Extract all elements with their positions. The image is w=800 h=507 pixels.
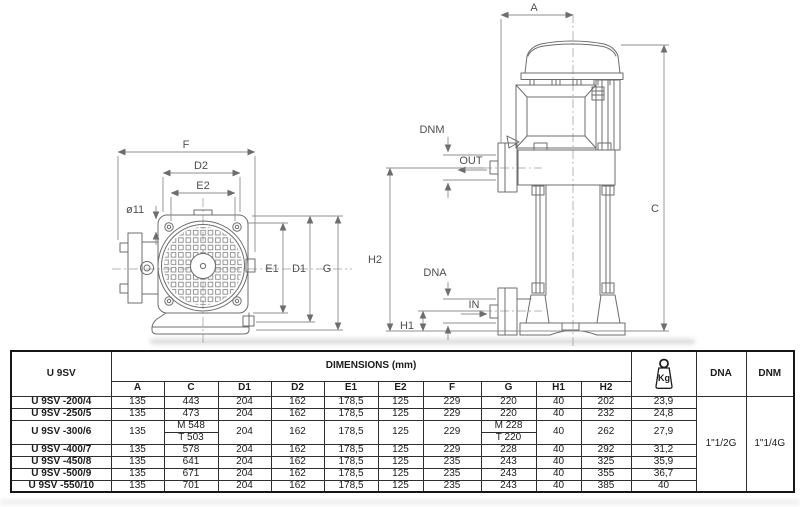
table-row: U 9SV -400/7 135 578 204 162 178,5 125 2… xyxy=(11,444,794,456)
dim-cell: 204 xyxy=(218,396,271,408)
dim-cell: 385 xyxy=(581,480,631,492)
dim-cell: 162 xyxy=(271,396,324,408)
dim-cell: 178,5 xyxy=(324,408,378,420)
dim-cell: 204 xyxy=(218,480,271,492)
port-label-out: OUT xyxy=(459,155,483,167)
dim-label-hole-diameter: ø11 xyxy=(126,204,144,216)
dim-cell: 229 xyxy=(423,420,481,444)
weight-cell: 36,7 xyxy=(631,468,696,480)
dim-cell: T 220 xyxy=(481,432,536,444)
dim-cell: 229 xyxy=(423,396,481,408)
side-view-drawing xyxy=(490,41,625,335)
dim-cell: 204 xyxy=(218,456,271,468)
dim-cell: 135 xyxy=(111,456,164,468)
dim-cell: 178,5 xyxy=(324,456,378,468)
dim-cell: 40 xyxy=(536,444,581,456)
dim-label-dnm: DNM xyxy=(419,124,444,136)
dna-value-cell: 1"1/2G xyxy=(696,396,746,492)
dim-cell: 178,5 xyxy=(324,396,378,408)
dim-cell: 232 xyxy=(581,408,631,420)
col-header-d1: D1 xyxy=(218,381,271,396)
dim-cell: 243 xyxy=(481,468,536,480)
dim-cell: 204 xyxy=(218,408,271,420)
dim-cell: 235 xyxy=(423,456,481,468)
dim-cell: 162 xyxy=(271,468,324,480)
dim-cell: 220 xyxy=(481,408,536,420)
col-header-c: C xyxy=(164,381,218,396)
dim-label-h2: H2 xyxy=(368,254,382,266)
model-cell: U 9SV -500/9 xyxy=(11,468,111,480)
weight-cell: 31,2 xyxy=(631,444,696,456)
dim-cell: 162 xyxy=(271,420,324,444)
dim-cell: 40 xyxy=(536,456,581,468)
weight-column-header: Kg xyxy=(631,351,696,396)
dim-cell: 40 xyxy=(536,396,581,408)
dim-label-g: G xyxy=(323,263,332,275)
dim-cell: 40 xyxy=(536,480,581,492)
dim-cell: 355 xyxy=(581,468,631,480)
dim-label-a: A xyxy=(530,2,538,14)
dim-cell: 243 xyxy=(481,456,536,468)
dim-label-d2: D2 xyxy=(194,160,208,172)
model-cell: U 9SV -400/7 xyxy=(11,444,111,456)
dim-cell: 220 xyxy=(481,396,536,408)
col-header-h2: H2 xyxy=(581,381,631,396)
dim-cell: 228 xyxy=(481,444,536,456)
dnm-header: DNM xyxy=(746,351,794,396)
dim-cell: 243 xyxy=(481,480,536,492)
dim-cell: 671 xyxy=(164,468,218,480)
dim-cell: 229 xyxy=(423,408,481,420)
scan-shadow xyxy=(150,339,695,344)
col-header-h1: H1 xyxy=(536,381,581,396)
col-header-a: A xyxy=(111,381,164,396)
dim-cell: 235 xyxy=(423,480,481,492)
dim-cell: 135 xyxy=(111,408,164,420)
dim-label-e1: E1 xyxy=(265,263,278,275)
weight-cell: 27,9 xyxy=(631,420,696,444)
dim-label-e2: E2 xyxy=(196,180,209,192)
dimensions-table: U 9SV DIMENSIONS (mm) Kg DNA DNM A C D1 … xyxy=(10,350,795,493)
weight-cell: 24,8 xyxy=(631,408,696,420)
model-cell: U 9SV -300/6 xyxy=(11,420,111,444)
dnm-value-cell: 1"1/4G xyxy=(746,396,794,492)
dim-label-d1: D1 xyxy=(292,263,306,275)
dim-label-f: F xyxy=(183,139,190,151)
dim-cell: M 548 xyxy=(164,420,218,432)
dim-cell: 235 xyxy=(423,468,481,480)
dim-label-c: C xyxy=(651,203,659,215)
col-header-g: G xyxy=(481,381,536,396)
dim-cell: 40 xyxy=(536,468,581,480)
dim-cell: 135 xyxy=(111,396,164,408)
dim-cell: 443 xyxy=(164,396,218,408)
dim-cell: 125 xyxy=(378,480,423,492)
model-cell: U 9SV -550/10 xyxy=(11,480,111,492)
model-cell: U 9SV -200/4 xyxy=(11,396,111,408)
dim-label-h1: H1 xyxy=(400,320,414,332)
dim-cell: 125 xyxy=(378,468,423,480)
dim-cell: 162 xyxy=(271,408,324,420)
dim-cell: 162 xyxy=(271,456,324,468)
table-row: U 9SV -550/10 135 701 204 162 178,5 125 … xyxy=(11,480,794,492)
dim-cell: 641 xyxy=(164,456,218,468)
dim-cell: 135 xyxy=(111,420,164,444)
dna-header: DNA xyxy=(696,351,746,396)
dimensions-header: DIMENSIONS (mm) xyxy=(111,351,631,381)
dim-cell: 125 xyxy=(378,396,423,408)
dim-cell: 262 xyxy=(581,420,631,444)
dim-cell: 178,5 xyxy=(324,480,378,492)
model-cell: U 9SV -450/8 xyxy=(11,456,111,468)
dim-cell: 473 xyxy=(164,408,218,420)
dim-cell: 202 xyxy=(581,396,631,408)
dim-cell: 162 xyxy=(271,480,324,492)
port-label-in: IN xyxy=(469,299,480,311)
dim-cell: 229 xyxy=(423,444,481,456)
series-header: U 9SV xyxy=(11,351,111,396)
dim-cell: 292 xyxy=(581,444,631,456)
dim-cell: 125 xyxy=(378,444,423,456)
kg-icon: Kg xyxy=(651,357,677,390)
dim-cell: M 228 xyxy=(481,420,536,432)
dim-cell: 125 xyxy=(378,408,423,420)
dim-cell: 135 xyxy=(111,468,164,480)
front-view-drawing xyxy=(120,210,255,334)
dim-label-dna: DNA xyxy=(423,267,447,279)
svg-text:Kg: Kg xyxy=(658,373,670,383)
col-header-e2: E2 xyxy=(378,381,423,396)
scan-shadow xyxy=(0,500,800,504)
dim-cell: 204 xyxy=(218,468,271,480)
table-row: U 9SV -450/8 135 641 204 162 178,5 125 2… xyxy=(11,456,794,468)
dim-cell: T 503 xyxy=(164,432,218,444)
dim-cell: 701 xyxy=(164,480,218,492)
catalog-page: F D2 E2 ø11 E1 D1 G H2 DNM OUT DNA IN H1… xyxy=(0,0,800,507)
dim-cell: 178,5 xyxy=(324,468,378,480)
table-row: U 9SV -250/5 135 473 204 162 178,5 125 2… xyxy=(11,408,794,420)
col-header-d2: D2 xyxy=(271,381,324,396)
col-header-e1: E1 xyxy=(324,381,378,396)
dim-cell: 178,5 xyxy=(324,444,378,456)
weight-cell: 35,9 xyxy=(631,456,696,468)
model-cell: U 9SV -250/5 xyxy=(11,408,111,420)
weight-cell: 23,9 xyxy=(631,396,696,408)
weight-cell: 40 xyxy=(631,480,696,492)
dim-cell: 178,5 xyxy=(324,420,378,444)
dim-cell: 204 xyxy=(218,420,271,444)
dim-cell: 125 xyxy=(378,456,423,468)
col-header-f: F xyxy=(423,381,481,396)
table-row: U 9SV -500/9 135 671 204 162 178,5 125 2… xyxy=(11,468,794,480)
dim-cell: 204 xyxy=(218,444,271,456)
dim-cell: 40 xyxy=(536,420,581,444)
table-row: U 9SV -300/6 135 M 548 204 162 178,5 125… xyxy=(11,420,794,432)
dim-cell: 135 xyxy=(111,444,164,456)
dim-cell: 40 xyxy=(536,408,581,420)
dim-cell: 325 xyxy=(581,456,631,468)
dim-cell: 162 xyxy=(271,444,324,456)
table-row: U 9SV -200/4 135 443 204 162 178,5 125 2… xyxy=(11,396,794,408)
dim-cell: 125 xyxy=(378,420,423,444)
dim-cell: 135 xyxy=(111,480,164,492)
technical-drawings: F D2 E2 ø11 E1 D1 G H2 DNM OUT DNA IN H1… xyxy=(0,0,800,350)
dim-cell: 578 xyxy=(164,444,218,456)
